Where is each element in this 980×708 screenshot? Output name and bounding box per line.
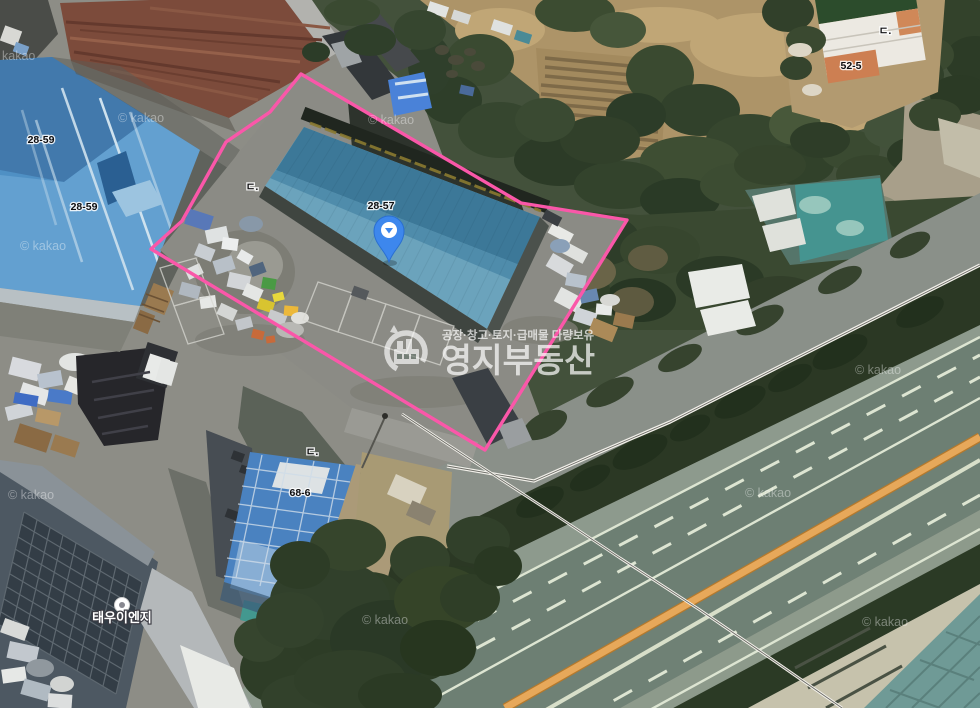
svg-text:© kakao: © kakao — [862, 615, 908, 629]
svg-text:© kakao: © kakao — [745, 486, 791, 500]
svg-text:영지부동산: 영지부동산 — [441, 343, 595, 380]
svg-text:ㄷ.: ㄷ. — [879, 25, 892, 37]
svg-text:© kakao: © kakao — [368, 113, 414, 127]
svg-text:52-5: 52-5 — [840, 60, 861, 72]
svg-text:kakao: kakao — [2, 49, 35, 63]
svg-text:© kakao: © kakao — [118, 111, 164, 125]
svg-text:© kakao: © kakao — [855, 363, 901, 377]
svg-text:© kakao: © kakao — [20, 239, 66, 253]
svg-text:© kakao: © kakao — [8, 488, 54, 502]
svg-text:28-57: 28-57 — [368, 200, 395, 212]
svg-text:ㄷ.: ㄷ. — [306, 446, 319, 458]
svg-text:ㄷ.: ㄷ. — [246, 181, 259, 193]
svg-text:© kakao: © kakao — [362, 613, 408, 627]
svg-text:공장·창고·토지·급매물 다량보유: 공장·창고·토지·급매물 다량보유 — [442, 328, 595, 342]
svg-text:태우이엔지: 태우이엔지 — [92, 610, 152, 625]
svg-text:28-59: 28-59 — [71, 201, 98, 213]
svg-text:68-6: 68-6 — [289, 487, 310, 499]
svg-text:28-59: 28-59 — [28, 134, 55, 146]
